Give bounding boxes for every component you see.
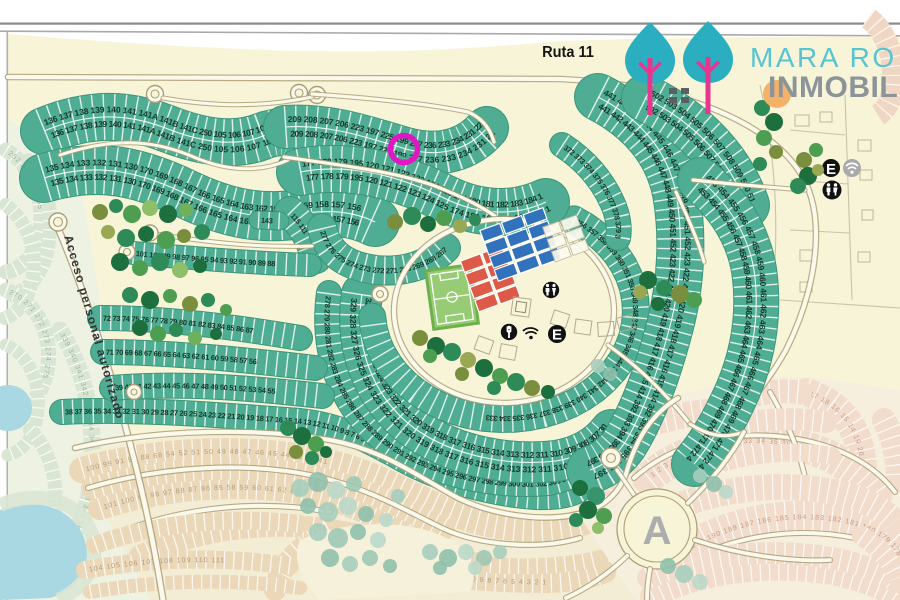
svg-text:E: E	[552, 327, 562, 344]
svg-text:Ruta 11: Ruta 11	[542, 44, 594, 62]
svg-text:INMOBIL: INMOBIL	[768, 71, 898, 104]
svg-text:A: A	[643, 509, 672, 553]
svg-text:MARA RO: MARA RO	[750, 42, 897, 73]
svg-text:143: 143	[261, 216, 273, 226]
svg-text:E: E	[826, 161, 836, 178]
